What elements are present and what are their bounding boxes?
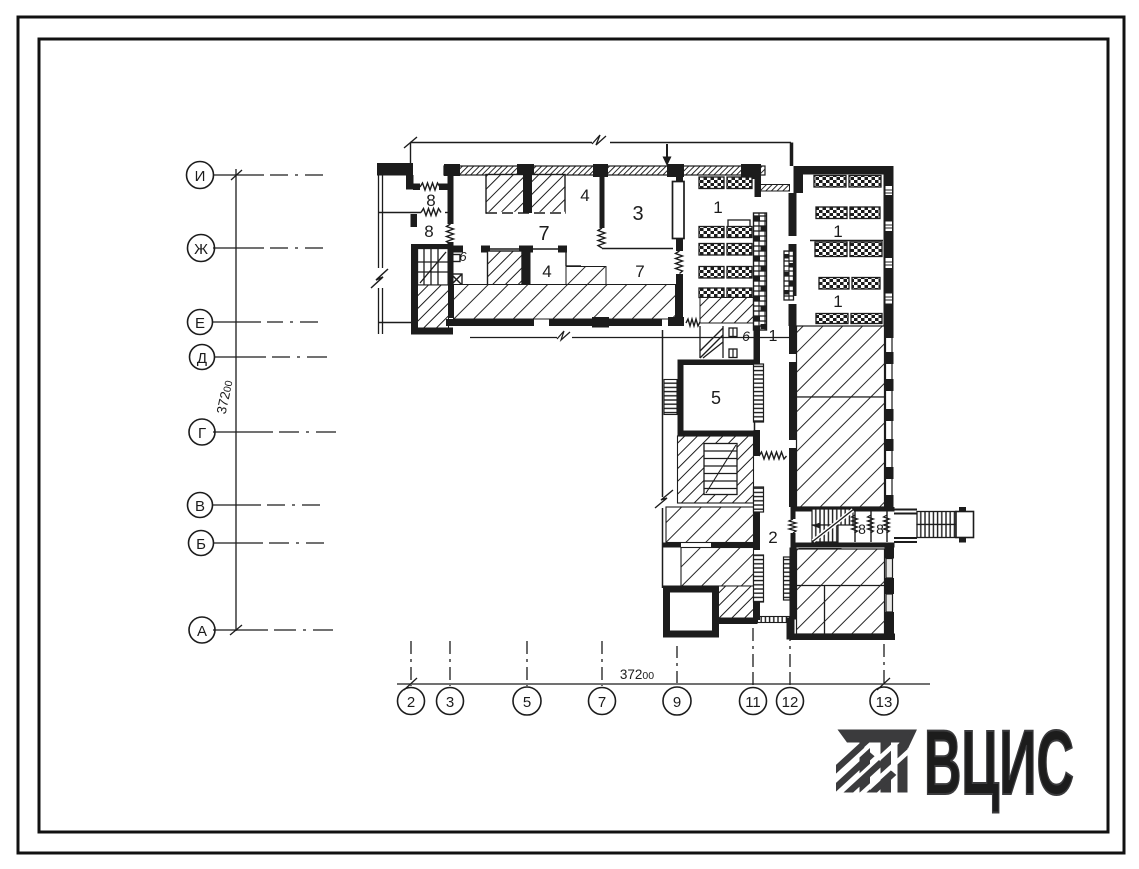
svg-text:4: 4 (542, 262, 551, 281)
svg-text:1: 1 (769, 328, 778, 345)
svg-text:7: 7 (538, 223, 549, 245)
svg-text:Ж: Ж (194, 241, 208, 258)
svg-text:9: 9 (673, 694, 681, 711)
svg-text:7: 7 (635, 262, 644, 281)
svg-text:12: 12 (782, 694, 799, 711)
svg-text:Е: Е (195, 315, 205, 332)
svg-text:1: 1 (833, 222, 842, 241)
svg-text:В: В (195, 498, 205, 515)
svg-text:3: 3 (632, 203, 643, 225)
svg-text:37200: 37200 (214, 379, 236, 416)
svg-text:11: 11 (745, 694, 761, 711)
svg-text:8: 8 (876, 521, 884, 537)
svg-text:3: 3 (446, 694, 454, 711)
svg-text:2: 2 (407, 694, 415, 711)
svg-text:Б: Б (196, 536, 206, 553)
svg-text:8: 8 (424, 222, 433, 241)
svg-text:37200: 37200 (620, 667, 654, 682)
svg-text:5: 5 (711, 388, 721, 408)
svg-text:А: А (197, 623, 207, 640)
svg-text:1: 1 (833, 292, 842, 311)
svg-text:8: 8 (858, 521, 866, 537)
svg-text:8: 8 (426, 191, 435, 210)
svg-text:6: 6 (742, 328, 750, 344)
svg-text:Д: Д (197, 350, 207, 367)
svg-text:ВЦИС: ВЦИС (924, 712, 1074, 814)
svg-text:2: 2 (768, 528, 777, 547)
svg-text:7: 7 (598, 694, 606, 711)
svg-text:5: 5 (523, 694, 531, 711)
svg-text:Г: Г (198, 425, 206, 442)
svg-text:13: 13 (876, 694, 893, 711)
svg-text:1: 1 (713, 198, 722, 217)
svg-text:4: 4 (580, 186, 589, 205)
svg-text:И: И (195, 168, 206, 185)
